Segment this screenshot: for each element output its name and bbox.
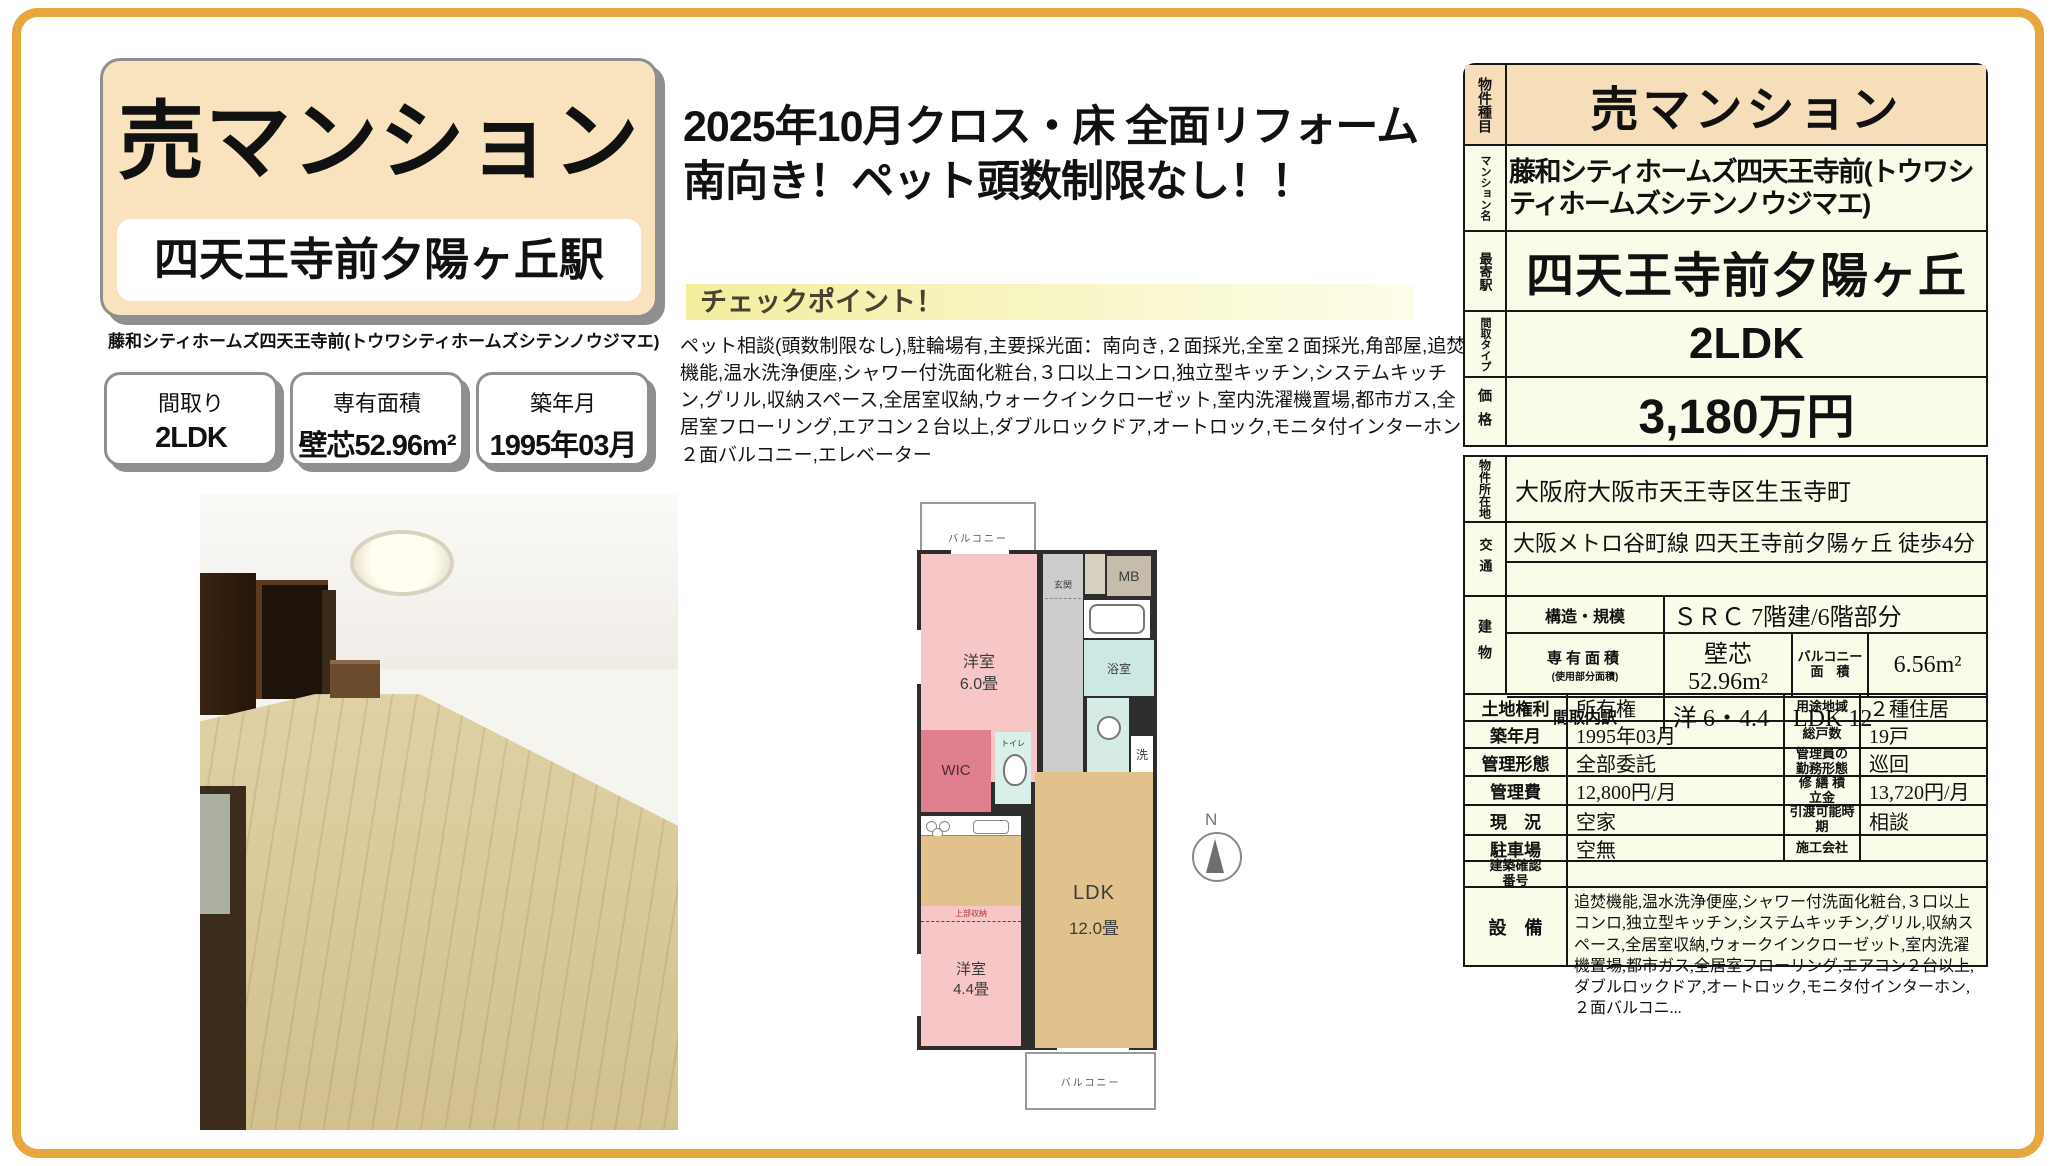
table-row: 設 備 追焚機能,温水洗浄便座,シャワー付洗面化粧台,３口以上コンロ,独立型キッ…: [1465, 888, 1986, 965]
property-type-value: 売マンション: [1507, 65, 1986, 144]
building-name-small: 藤和シティホームズ四天王寺前(トウワシティホームズシテンノウジマエ): [108, 327, 678, 352]
summary-table: 物件種目 売マンション マンション名 藤和シティホームズ四天王寺前(トウワシティ…: [1463, 63, 1988, 447]
table-row: マンション名 藤和シティホームズ四天王寺前(トウワシティホームズシテンノウジマエ…: [1465, 146, 1986, 232]
catchphrase-line1: 2025年10月クロス・床 全面リフォーム: [683, 100, 1458, 155]
badge-value: 2LDK: [107, 422, 275, 455]
address-value: 大阪府大阪市天王寺区生玉寺町: [1507, 457, 1986, 521]
floor-plan: バルコニー 洋室 6.0畳 玄関 MB: [905, 494, 1305, 1159]
row-label: 物件種目: [1465, 65, 1507, 144]
room-west44: 洋室 4.4畳: [921, 922, 1021, 1046]
checkpoint-body: ペット相談(頭数制限なし),駐輪場有,主要採光面：南向き,２面採光,全室２面採光…: [680, 333, 1468, 469]
row-label: 物件所在地: [1465, 457, 1507, 521]
table-row: 物件所在地 大阪府大阪市天王寺区生玉寺町: [1465, 457, 1986, 523]
entrance-step-line: [1045, 598, 1081, 599]
pair-value: 空無: [1568, 836, 1785, 860]
pair-label: 施工会社: [1785, 836, 1861, 860]
table-row: 現 況 空家 引渡可能時期 相談: [1465, 806, 1986, 836]
table-row: 交通 大阪メトロ谷町線 四天王寺前夕陽ヶ丘 徒歩4分: [1465, 523, 1986, 597]
structure-label: 構造・規模: [1507, 597, 1665, 632]
badge-label: 間取り: [107, 386, 275, 418]
photo-dark-door: [200, 573, 256, 715]
balcony-area-value: 6.56m²: [1869, 634, 1986, 696]
interior-photo: [200, 494, 678, 1130]
pair-label: 築年月: [1465, 722, 1568, 747]
badge-built-year: 築年月 1995年03月: [476, 372, 650, 466]
pair-value: 全部委託: [1568, 749, 1785, 775]
pair-value: 1995年03月: [1568, 722, 1785, 747]
row-label: 最寄駅: [1465, 232, 1507, 310]
pair-value: 空家: [1568, 806, 1785, 834]
washbasin: [1097, 716, 1121, 740]
table-row: 間取タイプ 2LDK: [1465, 312, 1986, 378]
badge-area: 専有面積 壁芯52.96m²: [290, 372, 464, 466]
badge-value: 壁芯52.96m²: [293, 422, 461, 464]
area-value: 壁芯52.96m²: [1665, 634, 1793, 696]
balcony-top: バルコニー: [920, 502, 1036, 552]
pair-value: 巡回: [1861, 749, 1986, 775]
pair-value: 12,800円/月: [1568, 777, 1785, 804]
pair-label: 引渡可能時期: [1785, 806, 1861, 834]
compass-n-label: N: [1205, 810, 1217, 830]
table-row: 管理形態 全部委託 管理員の勤務形態 巡回: [1465, 749, 1986, 777]
catchphrase-line2: 南向き！ペット頭数制限なし！！: [683, 155, 1458, 210]
table-row: 土地権利 所有権 用途地域 ２種住居: [1465, 695, 1986, 722]
table-row: 建築確認番号: [1465, 862, 1986, 888]
row-label: マンション名: [1465, 146, 1507, 230]
access-subrows: 大阪メトロ谷町線 四天王寺前夕陽ヶ丘 徒歩4分: [1507, 523, 1986, 595]
pair-value: 13,720円/月: [1861, 777, 1986, 804]
pair-label: 管理員の勤務形態: [1785, 749, 1861, 775]
row-label: 価格: [1465, 378, 1507, 445]
table-row: 築年月 1995年03月 総戸数 19戸: [1465, 722, 1986, 749]
detail-table: 物件所在地 大阪府大阪市天王寺区生玉寺町 交通 大阪メトロ谷町線 四天王寺前夕陽…: [1463, 455, 1988, 967]
pair-value: [1861, 836, 1986, 860]
photo-cabinet: [330, 660, 380, 698]
pair-label: 修 繕 積立金: [1785, 777, 1861, 804]
walk-in-closet: WIC: [921, 730, 991, 812]
equipment-value: 追焚機能,温水洗浄便座,シャワー付洗面化粧台,３口以上コンロ,独立型キッチン,シ…: [1568, 888, 1986, 965]
price-value: 3,180万円: [1507, 378, 1986, 445]
laundry-space: 洗: [1131, 736, 1153, 774]
mansion-name-value: 藤和シティホームズ四天王寺前(トウワシティホームズシテンノウジマエ): [1507, 146, 1986, 230]
equipment-label: 設 備: [1465, 888, 1568, 965]
title-card: 売マンション 四天王寺前夕陽ヶ丘駅: [100, 58, 658, 318]
photo-window-glass: [200, 794, 230, 914]
kitchen-counter: [921, 816, 1021, 836]
table-row: 物件種目 売マンション: [1465, 65, 1986, 146]
checkpoint-heading: チェックポイント！: [686, 284, 1414, 320]
pair-label: 駐車場: [1465, 836, 1568, 860]
table-row: 管理費 12,800円/月 修 繕 積立金 13,720円/月: [1465, 777, 1986, 806]
balcony-area-label: バルコニー 面 積: [1793, 634, 1869, 696]
compass-needle: [1206, 839, 1224, 873]
pair-label: 管理費: [1465, 777, 1568, 804]
kitchen-sink: [973, 820, 1009, 834]
area-label: 専有面積 (使用部分面積): [1507, 634, 1665, 696]
kakunin-label: 建築確認番号: [1465, 862, 1568, 886]
kakunin-value: [1568, 862, 1986, 886]
entry-cell: [1085, 554, 1105, 594]
pair-label: 現 況: [1465, 806, 1568, 834]
catchphrase: 2025年10月クロス・床 全面リフォーム 南向き！ペット頭数制限なし！！: [683, 100, 1458, 210]
photo-wood-floor: [200, 676, 678, 1130]
badge-layout: 間取り 2LDK: [104, 372, 278, 466]
pair-label: 総戸数: [1785, 722, 1861, 747]
access-value: 大阪メトロ谷町線 四天王寺前夕陽ヶ丘 徒歩4分: [1507, 523, 1986, 561]
badge-label: 築年月: [479, 386, 647, 418]
pair-label: 用途地域: [1785, 695, 1861, 720]
access-row-empty: [1507, 563, 1986, 595]
meter-box: MB: [1107, 556, 1151, 596]
pair-label: 土地権利: [1465, 695, 1568, 720]
layout-type-value: 2LDK: [1507, 312, 1986, 376]
bathroom: 浴室: [1084, 640, 1154, 696]
ldk-room: LDK 12.0畳: [1035, 772, 1153, 1048]
row-label: 間取タイプ: [1465, 312, 1507, 376]
structure-row: 構造・規模 ＳＲＣ 7階建/6階部分: [1507, 597, 1986, 634]
upper-closet: 上部収納: [921, 906, 1021, 922]
pair-value: 所有権: [1568, 695, 1785, 720]
photo-hallway: [256, 580, 328, 699]
property-type-title: 売マンション: [103, 71, 655, 196]
row-label: 建物: [1465, 597, 1507, 693]
station-name: 四天王寺前夕陽ヶ丘駅: [117, 219, 641, 301]
kitchen-floor: [921, 836, 1021, 906]
row-label: 交通: [1465, 523, 1507, 595]
washroom: [1087, 698, 1129, 776]
toilet-shape: [1003, 754, 1027, 786]
area-row: 専有面積 (使用部分面積) 壁芯52.96m² バルコニー 面 積 6.56m²: [1507, 634, 1986, 698]
table-row: 価格 3,180万円: [1465, 378, 1986, 445]
bathtub-shape: [1089, 604, 1145, 634]
table-row: 最寄駅 四天王寺前夕陽ヶ丘: [1465, 232, 1986, 312]
badge-label: 専有面積: [293, 386, 461, 418]
flyer-page: 売マンション 四天王寺前夕陽ヶ丘駅 藤和シティホームズ四天王寺前(トウワシティホ…: [0, 0, 2056, 1166]
floorplan-unit: 洋室 6.0畳 玄関 MB 浴室 洗 W: [917, 550, 1157, 1050]
bathtub: [1084, 600, 1150, 638]
badge-value: 1995年03月: [479, 422, 647, 464]
access-row: 大阪メトロ谷町線 四天王寺前夕陽ヶ丘 徒歩4分: [1507, 523, 1986, 563]
pair-value: 相談: [1861, 806, 1986, 834]
station-value: 四天王寺前夕陽ヶ丘: [1507, 232, 1986, 310]
toilet-room: トイレ: [995, 732, 1031, 804]
compass-icon: [1192, 832, 1242, 882]
pair-value: ２種住居: [1861, 695, 1986, 720]
table-row: 建物 構造・規模 ＳＲＣ 7階建/6階部分 専有面積 (使用部分面積) 壁芯52…: [1465, 597, 1986, 695]
photo-ceiling-light: [350, 530, 454, 596]
balcony-bottom: バルコニー: [1025, 1052, 1156, 1110]
building-subrows: 構造・規模 ＳＲＣ 7階建/6階部分 専有面積 (使用部分面積) 壁芯52.96…: [1507, 597, 1986, 693]
structure-value: ＳＲＣ 7階建/6階部分: [1665, 597, 1986, 632]
pair-label: 管理形態: [1465, 749, 1568, 775]
pair-value: 19戸: [1861, 722, 1986, 747]
